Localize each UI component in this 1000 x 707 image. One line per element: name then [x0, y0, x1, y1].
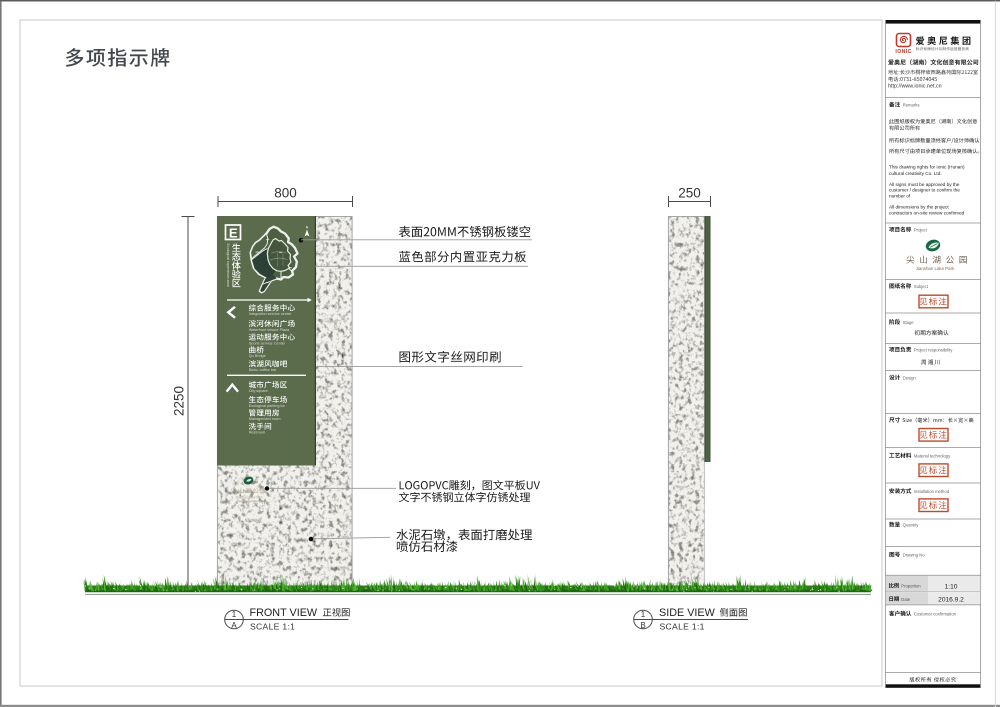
svg-text:1: 1 [232, 610, 237, 619]
svg-text:Design: Design [903, 376, 917, 381]
svg-text:FRONT VIEW: FRONT VIEW [250, 607, 318, 619]
svg-text:Customer confirmation: Customer confirmation [914, 612, 957, 617]
svg-text:number of: number of [889, 194, 911, 199]
svg-text:SCALE 1:1: SCALE 1:1 [660, 622, 705, 632]
svg-text:Integration service center: Integration service center [249, 312, 292, 316]
svg-text:2250: 2250 [172, 386, 187, 416]
svg-text:Installation method: Installation method [914, 489, 950, 494]
svg-text:http://www.ionic.net.cn: http://www.ionic.net.cn [888, 84, 942, 90]
svg-text:Ecological experience area: Ecological experience area [226, 244, 230, 287]
svg-text:This drawing rights for Ionic: This drawing rights for Ionic (Hunan) [889, 165, 965, 170]
svg-text:City square: City square [249, 389, 268, 393]
svg-text:Management room: Management room [249, 417, 281, 421]
svg-text:250: 250 [678, 186, 701, 201]
svg-text:Qu Bridge: Qu Bridge [249, 354, 266, 358]
svg-text:Project: Project [914, 228, 928, 233]
svg-text:Binhu coffee bar: Binhu coffee bar [249, 368, 277, 372]
svg-text:2016.9.2: 2016.9.2 [938, 597, 964, 604]
svg-text:Quantity: Quantity [903, 523, 920, 528]
svg-text:contractors on-site review con: contractors on-site review confirmed [889, 210, 965, 215]
svg-text:Remarks: Remarks [903, 103, 920, 108]
svg-text:Material technology: Material technology [914, 454, 951, 459]
svg-text:Ecological parking lot: Ecological parking lot [249, 404, 286, 408]
svg-text:Subject: Subject [914, 284, 929, 289]
svg-text:Waterfront leisure Plaza: Waterfront leisure Plaza [249, 328, 290, 332]
svg-text:Drawing No: Drawing No [903, 553, 926, 558]
svg-text:E: E [229, 225, 238, 240]
svg-text:All signs must be approved by: All signs must be approved by the [889, 182, 960, 187]
svg-text:cultural creativity Co. Ltd.: cultural creativity Co. Ltd. [889, 171, 942, 176]
svg-text:Proportion: Proportion [901, 584, 921, 589]
svg-text:SIDE VIEW: SIDE VIEW [659, 607, 716, 619]
svg-text:Jianshan Lake Park: Jianshan Lake Park [916, 266, 955, 271]
svg-text:1: 1 [641, 610, 646, 619]
svg-text:Date: Date [901, 597, 911, 602]
svg-text:A: A [231, 621, 237, 630]
svg-text:All dimensions by the project: All dimensions by the project [889, 204, 949, 209]
svg-text:Jianshan Lake Park: Jianshan Lake Park [235, 496, 263, 500]
svg-text:Project responsibility: Project responsibility [914, 348, 953, 353]
svg-text:800: 800 [274, 186, 297, 201]
svg-text:Restroom: Restroom [249, 431, 265, 435]
svg-text:customer / designer to confirm: customer / designer to confirm the [889, 188, 960, 193]
svg-text:Sports service Center: Sports service Center [249, 341, 286, 345]
svg-text:B: B [640, 621, 645, 630]
svg-text:IONIC: IONIC [895, 49, 911, 55]
svg-text:SCALE 1:1: SCALE 1:1 [250, 622, 295, 632]
svg-text:Stage: Stage [903, 320, 915, 325]
svg-text:1:10: 1:10 [945, 583, 958, 590]
